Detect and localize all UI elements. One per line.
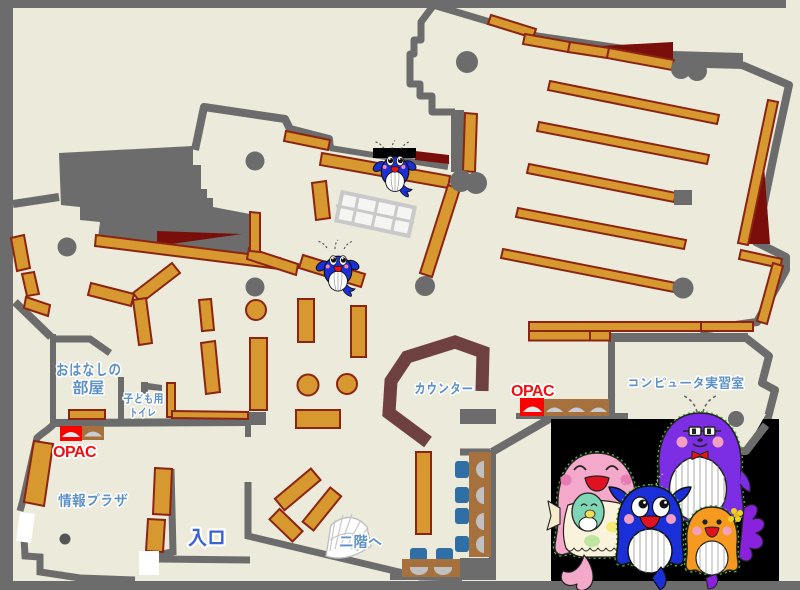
svg-text:OPAC: OPAC [53,444,97,461]
svg-text:OPAC: OPAC [511,383,555,400]
